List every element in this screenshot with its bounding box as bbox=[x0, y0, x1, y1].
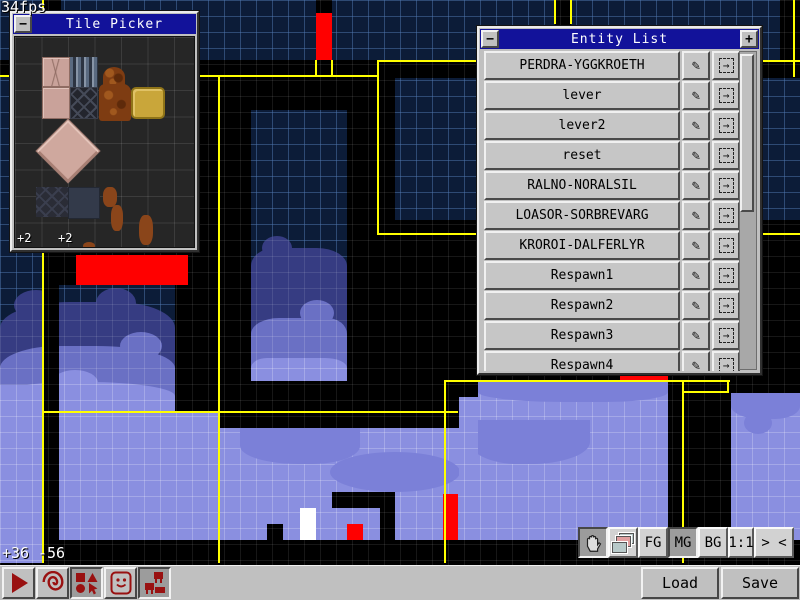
goto-icon: → bbox=[719, 238, 734, 253]
minimize-button[interactable]: − bbox=[14, 15, 32, 33]
edit-entity-button[interactable]: ✎ bbox=[682, 351, 710, 371]
edit-entity-button[interactable]: ✎ bbox=[682, 81, 710, 110]
save-button[interactable]: Save bbox=[721, 567, 799, 599]
entity-name-button[interactable]: reset bbox=[484, 141, 680, 170]
pencil-icon: ✎ bbox=[692, 268, 700, 284]
level-rect bbox=[793, 0, 795, 77]
level-rect bbox=[316, 0, 332, 13]
level-rect bbox=[570, 0, 572, 24]
level-rect bbox=[44, 285, 59, 563]
entity-row: Respawn4✎→ bbox=[484, 351, 740, 371]
pencil-icon: ✎ bbox=[692, 238, 700, 254]
level-rect bbox=[240, 428, 360, 464]
pencil-icon: ✎ bbox=[692, 298, 700, 314]
goto-entity-button[interactable]: → bbox=[712, 81, 740, 110]
tile-picker-content[interactable]: +2 +2 bbox=[14, 36, 195, 248]
level-rect bbox=[744, 412, 772, 434]
entity-name-button[interactable]: LOASOR-SORBREVARG bbox=[484, 201, 680, 230]
pencil-icon: ✎ bbox=[692, 208, 700, 224]
pencil-icon: ✎ bbox=[692, 58, 700, 74]
level-rect bbox=[682, 391, 729, 393]
tileset-offset-right: +2 bbox=[58, 231, 72, 245]
spiral-tool-button[interactable] bbox=[36, 567, 69, 599]
level-rect bbox=[554, 0, 556, 24]
pencil-icon: ✎ bbox=[692, 88, 700, 104]
edit-entity-button[interactable]: ✎ bbox=[682, 201, 710, 230]
entity-tool-button[interactable] bbox=[104, 567, 137, 599]
goto-icon: → bbox=[719, 268, 734, 283]
entity-name-button[interactable]: RALNO-NORALSIL bbox=[484, 171, 680, 200]
entity-name-button[interactable]: lever2 bbox=[484, 111, 680, 140]
minimize-button[interactable]: − bbox=[481, 30, 499, 48]
tile-swatch[interactable] bbox=[42, 57, 70, 87]
level-rect bbox=[478, 380, 730, 382]
entity-row: RALNO-NORALSIL✎→ bbox=[484, 171, 740, 200]
entity-list-title: Entity List bbox=[500, 32, 739, 47]
face-icon bbox=[109, 571, 133, 595]
level-rect bbox=[267, 524, 283, 540]
layer-bar: FG MG BG 1:1 > < bbox=[578, 527, 794, 558]
tile-swatch[interactable] bbox=[70, 87, 98, 119]
entity-name-button[interactable]: Respawn4 bbox=[484, 351, 680, 371]
entity-name-button[interactable]: lever bbox=[484, 81, 680, 110]
tile-swatch[interactable] bbox=[42, 87, 70, 119]
edit-entity-button[interactable]: ✎ bbox=[682, 51, 710, 80]
entity-rows: PERDRA-YGGKROETH✎→lever✎→lever2✎→reset✎→… bbox=[484, 51, 740, 371]
pencil-icon: ✎ bbox=[692, 328, 700, 344]
tile-swatch[interactable] bbox=[83, 242, 95, 248]
goto-entity-button[interactable]: → bbox=[712, 261, 740, 290]
entity-name-button[interactable]: Respawn1 bbox=[484, 261, 680, 290]
level-rect bbox=[347, 524, 363, 540]
entity-list-window: − Entity List + PERDRA-YGGKROETH✎→lever✎… bbox=[477, 26, 762, 375]
level-rect bbox=[0, 252, 43, 285]
entity-scrollbar-thumb[interactable] bbox=[740, 54, 754, 212]
pencil-icon: ✎ bbox=[692, 178, 700, 194]
tile-picker-titlebar[interactable]: − Tile Picker bbox=[13, 14, 196, 34]
layer-bg-button[interactable]: BG bbox=[698, 527, 728, 558]
goto-icon: → bbox=[719, 358, 734, 371]
bottom-toolbar: Load Save bbox=[0, 565, 800, 600]
goto-entity-button[interactable]: → bbox=[712, 201, 740, 230]
goto-entity-button[interactable]: → bbox=[712, 351, 740, 371]
layers-icon bbox=[612, 533, 634, 553]
level-rect bbox=[316, 13, 332, 60]
goto-icon: → bbox=[719, 58, 734, 73]
pencil-icon: ✎ bbox=[692, 148, 700, 164]
level-rect bbox=[470, 420, 590, 464]
edit-entity-button[interactable]: ✎ bbox=[682, 141, 710, 170]
entity-name-button[interactable]: KROROI-DALFERLYR bbox=[484, 231, 680, 260]
goto-entity-button[interactable]: → bbox=[712, 141, 740, 170]
goto-entity-button[interactable]: → bbox=[712, 231, 740, 260]
entity-row: Respawn1✎→ bbox=[484, 261, 740, 290]
play-icon bbox=[7, 571, 31, 595]
goto-icon: → bbox=[719, 118, 734, 133]
goto-icon: → bbox=[719, 328, 734, 343]
spiral-icon bbox=[41, 571, 65, 595]
level-rect bbox=[332, 492, 395, 508]
entity-row: KROROI-DALFERLYR✎→ bbox=[484, 231, 740, 260]
level-rect bbox=[0, 385, 43, 563]
goto-entity-button[interactable]: → bbox=[712, 111, 740, 140]
pencil-icon: ✎ bbox=[692, 118, 700, 134]
tile-swatch[interactable] bbox=[68, 187, 100, 219]
pencil-icon: ✎ bbox=[692, 358, 700, 372]
play-button[interactable] bbox=[2, 567, 35, 599]
goto-entity-button[interactable]: → bbox=[712, 291, 740, 320]
entity-row: Respawn2✎→ bbox=[484, 291, 740, 320]
entity-row: lever✎→ bbox=[484, 81, 740, 110]
entity-list-titlebar[interactable]: − Entity List + bbox=[480, 29, 759, 49]
goto-icon: → bbox=[719, 178, 734, 193]
level-rect bbox=[218, 77, 220, 563]
tile-swatch[interactable] bbox=[131, 87, 165, 119]
level-rect bbox=[459, 397, 478, 540]
add-entity-button[interactable]: + bbox=[740, 30, 758, 48]
level-rect bbox=[251, 358, 347, 381]
tile-picker-window: − Tile Picker +2 +2 bbox=[10, 11, 199, 252]
level-rect bbox=[219, 413, 460, 428]
goto-entity-button[interactable]: → bbox=[712, 171, 740, 200]
cursor-coord-y: -56 bbox=[38, 544, 65, 562]
tileset-offset-left: +2 bbox=[17, 231, 31, 245]
level-rect bbox=[42, 411, 458, 413]
level-rect bbox=[444, 380, 446, 563]
shapes-tool-button[interactable] bbox=[70, 567, 103, 599]
shrink-button[interactable]: > < bbox=[754, 527, 794, 558]
edit-entity-button[interactable]: ✎ bbox=[682, 171, 710, 200]
entity-row: reset✎→ bbox=[484, 141, 740, 170]
tiles-icon bbox=[143, 571, 167, 595]
edit-entity-button[interactable]: ✎ bbox=[682, 291, 710, 320]
entity-row: PERDRA-YGGKROETH✎→ bbox=[484, 51, 740, 80]
hand-icon bbox=[582, 532, 604, 554]
goto-entity-button[interactable]: → bbox=[712, 321, 740, 350]
edit-entity-button[interactable]: ✎ bbox=[682, 261, 710, 290]
goto-icon: → bbox=[719, 298, 734, 313]
tile-swatch[interactable] bbox=[35, 118, 100, 183]
level-rect bbox=[478, 382, 668, 402]
tile-swatch[interactable] bbox=[111, 205, 123, 231]
layers-button[interactable] bbox=[608, 527, 638, 558]
level-rect bbox=[444, 380, 480, 382]
entity-name-button[interactable]: Respawn3 bbox=[484, 321, 680, 350]
editor-screen: 34fps +36 -56 − Tile Picker +2 +2 − Enti… bbox=[0, 0, 800, 600]
entity-name-button[interactable]: PERDRA-YGGKROETH bbox=[484, 51, 680, 80]
layer-fg-button[interactable]: FG bbox=[638, 527, 668, 558]
layer-mg-button[interactable]: MG bbox=[668, 527, 698, 558]
level-rect bbox=[380, 508, 395, 540]
fps-counter: 34fps bbox=[1, 0, 46, 16]
edit-entity-button[interactable]: ✎ bbox=[682, 231, 710, 260]
tile-picker-title: Tile Picker bbox=[33, 17, 196, 32]
pan-tool-button[interactable] bbox=[578, 527, 608, 558]
edit-entity-button[interactable]: ✎ bbox=[682, 321, 710, 350]
level-rect bbox=[377, 60, 379, 235]
goto-icon: → bbox=[719, 148, 734, 163]
level-rect bbox=[330, 452, 460, 492]
level-rect bbox=[315, 75, 333, 77]
goto-icon: → bbox=[719, 88, 734, 103]
load-button[interactable]: Load bbox=[641, 567, 719, 599]
level-rect bbox=[333, 75, 379, 77]
edit-entity-button[interactable]: ✎ bbox=[682, 111, 710, 140]
entity-row: lever2✎→ bbox=[484, 111, 740, 140]
tile-swatch[interactable] bbox=[103, 187, 117, 207]
tile-swatch[interactable] bbox=[70, 57, 98, 87]
tile-tool-button[interactable] bbox=[138, 567, 171, 599]
level-rect bbox=[76, 255, 188, 285]
entity-scrollbar[interactable] bbox=[739, 51, 757, 370]
tile-swatch[interactable] bbox=[99, 84, 131, 121]
goto-entity-button[interactable]: → bbox=[712, 51, 740, 80]
entity-row: LOASOR-SORBREVARG✎→ bbox=[484, 201, 740, 230]
shapes-icon bbox=[75, 571, 99, 595]
tile-swatch[interactable] bbox=[139, 215, 153, 245]
level-rect bbox=[300, 508, 316, 540]
level-rect bbox=[175, 285, 218, 413]
entity-name-button[interactable]: Respawn2 bbox=[484, 291, 680, 320]
cursor-coord-x: +36 bbox=[2, 544, 29, 562]
level-rect bbox=[668, 380, 731, 540]
zoom-1-1-button[interactable]: 1:1 bbox=[728, 527, 754, 558]
tile-swatch[interactable] bbox=[36, 187, 68, 217]
entity-row: Respawn3✎→ bbox=[484, 321, 740, 350]
goto-icon: → bbox=[719, 208, 734, 223]
